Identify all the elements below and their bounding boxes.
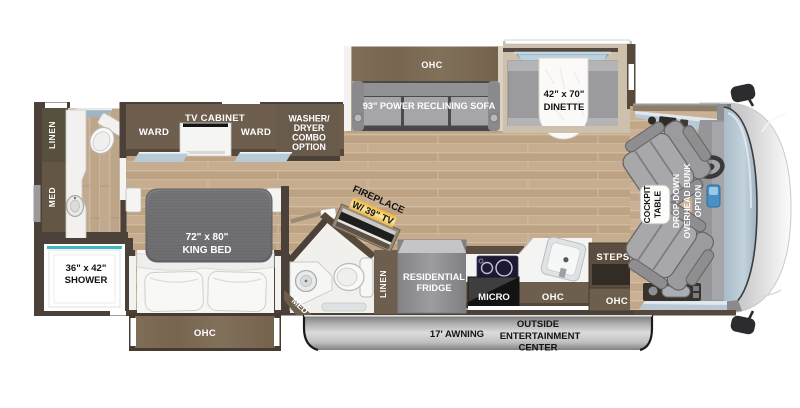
svg-text:OHC: OHC — [194, 328, 216, 339]
svg-text:17' AWNING: 17' AWNING — [430, 329, 484, 340]
svg-text:WARD: WARD — [241, 127, 271, 138]
svg-text:DINETTE: DINETTE — [544, 102, 585, 113]
svg-text:36" x 42": 36" x 42" — [66, 263, 107, 274]
svg-text:TV CABINET: TV CABINET — [185, 113, 245, 124]
svg-text:OUTSIDE: OUTSIDE — [517, 319, 559, 330]
svg-text:42" x 70": 42" x 70" — [544, 89, 585, 100]
svg-text:OVERHEAD BUNK: OVERHEAD BUNK — [682, 163, 692, 239]
svg-text:LINEN: LINEN — [378, 270, 388, 298]
svg-text:72" x 80": 72" x 80" — [186, 232, 229, 243]
svg-text:MED: MED — [47, 187, 57, 207]
svg-text:COMBO: COMBO — [292, 133, 326, 143]
svg-text:STEPS: STEPS — [596, 252, 629, 263]
svg-text:KING BED: KING BED — [183, 245, 232, 256]
svg-text:RESIDENTIAL: RESIDENTIAL — [403, 272, 465, 282]
svg-text:DRYER: DRYER — [294, 123, 325, 133]
svg-text:CENTER: CENTER — [518, 343, 557, 354]
svg-text:COCKPIT: COCKPIT — [642, 185, 652, 224]
svg-text:OPTION: OPTION — [292, 142, 326, 152]
svg-text:WASHER/: WASHER/ — [288, 114, 330, 124]
svg-text:FRIDGE: FRIDGE — [416, 283, 451, 293]
svg-text:SHOWER: SHOWER — [65, 275, 108, 286]
svg-text:LINEN: LINEN — [47, 121, 57, 149]
svg-text:TABLE: TABLE — [653, 190, 663, 218]
svg-text:ENTERTAINMENT: ENTERTAINMENT — [500, 331, 581, 342]
svg-text:DROP-DOWN: DROP-DOWN — [671, 174, 681, 228]
svg-text:WARD: WARD — [139, 127, 169, 138]
svg-text:93" POWER RECLINING SOFA: 93" POWER RECLINING SOFA — [363, 101, 496, 111]
svg-text:OHC: OHC — [421, 60, 442, 70]
svg-text:OHC: OHC — [542, 292, 564, 303]
svg-text:OPTION: OPTION — [693, 185, 703, 218]
svg-text:OHC: OHC — [606, 296, 628, 307]
svg-text:MICRO: MICRO — [478, 292, 510, 303]
